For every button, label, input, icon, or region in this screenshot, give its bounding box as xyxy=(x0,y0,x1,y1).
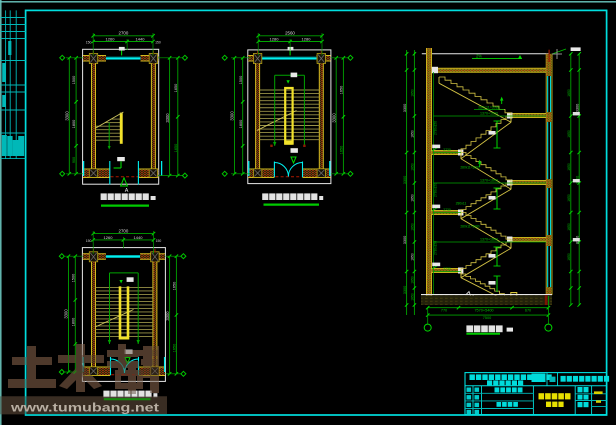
svg-text:1800: 1800 xyxy=(72,318,76,326)
svg-text:1280: 1280 xyxy=(270,37,280,42)
svg-text:1260: 1260 xyxy=(106,37,116,42)
svg-text:1650: 1650 xyxy=(567,194,571,202)
svg-text:2730x150: 2730x150 xyxy=(434,241,438,255)
svg-text:1650: 1650 xyxy=(567,163,571,171)
svg-text:280x11=3080: 280x11=3080 xyxy=(478,106,500,110)
svg-text:2560: 2560 xyxy=(285,31,295,36)
svg-text:3300: 3300 xyxy=(64,309,69,319)
svg-text:1650: 1650 xyxy=(411,194,415,202)
svg-text:1370+1600: 1370+1600 xyxy=(480,238,498,242)
svg-text:280x11=3080: 280x11=3080 xyxy=(460,225,479,229)
svg-text:1260: 1260 xyxy=(104,235,114,240)
svg-text:150: 150 xyxy=(86,40,92,44)
svg-text:3300: 3300 xyxy=(331,113,336,123)
svg-text:280x11=3080: 280x11=3080 xyxy=(460,166,479,170)
svg-text:2730: 2730 xyxy=(443,148,451,152)
svg-text:1280: 1280 xyxy=(302,37,312,42)
svg-text:1650: 1650 xyxy=(411,276,415,284)
svg-text:1500: 1500 xyxy=(72,274,76,282)
svg-text:3300: 3300 xyxy=(230,111,235,121)
svg-text:1650: 1650 xyxy=(411,89,415,97)
svg-text:1650: 1650 xyxy=(411,130,415,138)
svg-text:3300: 3300 xyxy=(403,176,407,184)
svg-text:1650: 1650 xyxy=(411,293,415,301)
svg-text:2730: 2730 xyxy=(443,267,451,271)
svg-text:3300: 3300 xyxy=(403,236,407,244)
svg-text:www.tumubang.net: www.tumubang.net xyxy=(10,401,159,415)
svg-text:3300: 3300 xyxy=(575,104,579,112)
svg-text:3300: 3300 xyxy=(165,311,170,321)
svg-text:3300: 3300 xyxy=(403,286,407,294)
svg-text:1650: 1650 xyxy=(567,223,571,231)
svg-text:1370+1600: 1370+1600 xyxy=(480,112,498,116)
svg-text:2700: 2700 xyxy=(119,31,129,36)
svg-text:3300: 3300 xyxy=(165,113,170,123)
svg-text:2730x150: 2730x150 xyxy=(434,183,438,197)
svg-text:1650: 1650 xyxy=(411,253,415,261)
svg-text:7570+5400: 7570+5400 xyxy=(474,308,493,312)
svg-text:1650: 1650 xyxy=(567,130,571,138)
svg-text:1500: 1500 xyxy=(72,76,76,84)
svg-text:670: 670 xyxy=(525,308,531,312)
svg-text:1800: 1800 xyxy=(239,120,243,128)
svg-text:1650: 1650 xyxy=(173,344,177,352)
svg-text:2700: 2700 xyxy=(119,228,129,233)
svg-text:1440: 1440 xyxy=(136,37,146,42)
svg-text:7500: 7500 xyxy=(483,316,491,320)
svg-text:1800: 1800 xyxy=(72,120,76,128)
svg-text:1440: 1440 xyxy=(134,235,144,240)
svg-text:1370+1600: 1370+1600 xyxy=(480,179,498,183)
svg-text:2730x150: 2730x150 xyxy=(434,121,438,135)
svg-text:2%: 2% xyxy=(476,53,482,58)
svg-text:1650: 1650 xyxy=(411,223,415,231)
svg-text:900: 900 xyxy=(72,157,76,163)
svg-text:280x11: 280x11 xyxy=(456,201,467,205)
svg-text:1650: 1650 xyxy=(340,86,344,94)
svg-text:150: 150 xyxy=(155,40,161,44)
svg-text:1500: 1500 xyxy=(239,76,243,84)
svg-text:1650: 1650 xyxy=(340,146,344,154)
svg-text:1650: 1650 xyxy=(174,144,178,152)
svg-text:A: A xyxy=(125,188,129,194)
svg-text:2730: 2730 xyxy=(443,208,451,212)
svg-text:3300: 3300 xyxy=(64,111,69,121)
svg-text:1650: 1650 xyxy=(173,282,177,290)
svg-text:770: 770 xyxy=(441,308,447,312)
svg-text:150: 150 xyxy=(86,239,92,243)
svg-text:1650: 1650 xyxy=(174,84,178,92)
svg-text:1650: 1650 xyxy=(411,163,415,171)
svg-text:1650: 1650 xyxy=(567,89,571,97)
svg-text:150: 150 xyxy=(156,239,162,243)
svg-text:3300: 3300 xyxy=(403,104,407,112)
svg-text:1650: 1650 xyxy=(567,253,571,261)
